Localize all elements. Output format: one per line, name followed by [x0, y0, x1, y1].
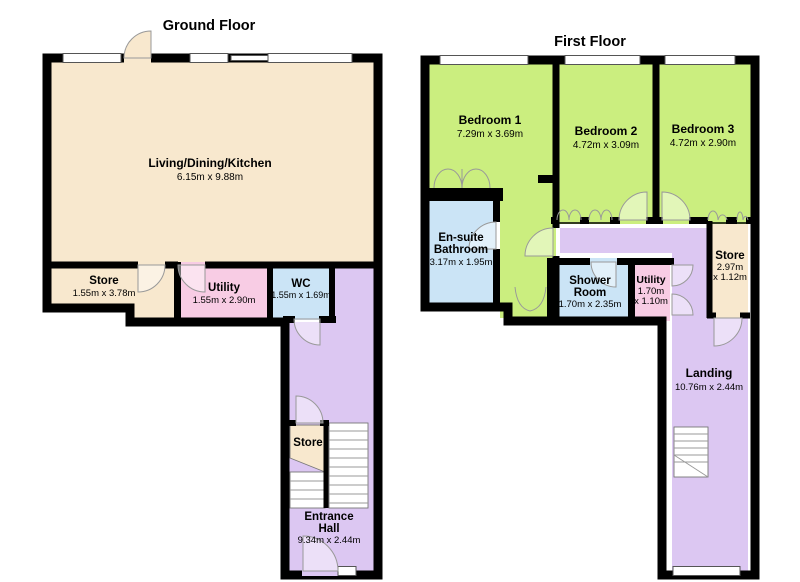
staircase-ff	[674, 427, 708, 477]
label-wc-dims: 1.55m x 1.69m	[271, 290, 331, 300]
ff-window-bed1	[440, 56, 528, 65]
label-ensuite-name2: Bathroom	[434, 244, 488, 256]
label-hall-name2: Hall	[318, 523, 339, 535]
label-ensuite-dims: 3.17m x 1.95m	[430, 257, 493, 268]
label-wc-name: WC	[291, 278, 310, 290]
door-living-front	[124, 31, 151, 58]
label-ensuite-name1: En-suite	[438, 232, 483, 244]
label-bed2-dims: 4.72m x 3.09m	[573, 140, 639, 151]
label-landing-name: Landing	[686, 366, 733, 380]
gf-window-1	[63, 54, 121, 63]
ground-floor-title: Ground Floor	[163, 18, 256, 34]
label-bed3-name: Bedroom 3	[672, 122, 735, 136]
label-utility-gf-dims: 1.55m x 2.90m	[193, 295, 256, 306]
label-hall-dims: 9.34m x 2.44m	[298, 535, 361, 546]
label-shower-name2: Room	[574, 287, 607, 299]
ff-window-bed3	[665, 56, 735, 65]
label-stair-store-name: Store	[293, 437, 322, 449]
label-bed1-name: Bedroom 1	[459, 113, 522, 127]
label-store-gf-name: Store	[89, 275, 118, 287]
label-shower-dims: 1.70m x 2.35m	[559, 299, 622, 310]
label-living-dims: 6.15m x 9.88m	[177, 172, 243, 183]
label-hall-name1: Entrance	[304, 511, 353, 523]
label-utility-ff-dims2: x 1.10m	[634, 296, 668, 307]
label-bed2-name: Bedroom 2	[575, 124, 638, 138]
label-store-ff-dims2: x 1.12m	[713, 272, 747, 283]
ff-window-landing	[673, 567, 740, 576]
ff-window-bed2	[565, 56, 640, 65]
gf-window-rear	[338, 567, 356, 576]
label-bed3-dims: 4.72m x 2.90m	[670, 138, 736, 149]
room-bedroom1	[429, 60, 556, 194]
label-landing-dims: 10.76m x 2.44m	[675, 382, 743, 393]
label-store-gf-dims: 1.55m x 3.78m	[73, 288, 136, 299]
label-shower-name1: Shower	[569, 275, 611, 287]
first-floor-title: First Floor	[554, 34, 626, 50]
gf-window-3	[268, 54, 352, 63]
label-utility-ff-name: Utility	[636, 274, 665, 286]
ff-ensuite-north-wall	[425, 188, 503, 201]
gf-window-joint	[231, 56, 268, 61]
staircase-up-flight	[329, 423, 368, 508]
label-bed1-dims: 7.29m x 3.69m	[457, 129, 523, 140]
label-utility-gf-name: Utility	[208, 282, 241, 294]
gf-window-2	[190, 54, 228, 63]
label-living-name: Living/Dining/Kitchen	[148, 156, 271, 170]
label-store-ff-name: Store	[715, 250, 744, 262]
floor-plan-canvas: Ground Floor First Floor Living/Dining/K…	[0, 0, 800, 582]
floor-plan-page: Ground Floor First Floor Living/Dining/K…	[0, 0, 800, 582]
